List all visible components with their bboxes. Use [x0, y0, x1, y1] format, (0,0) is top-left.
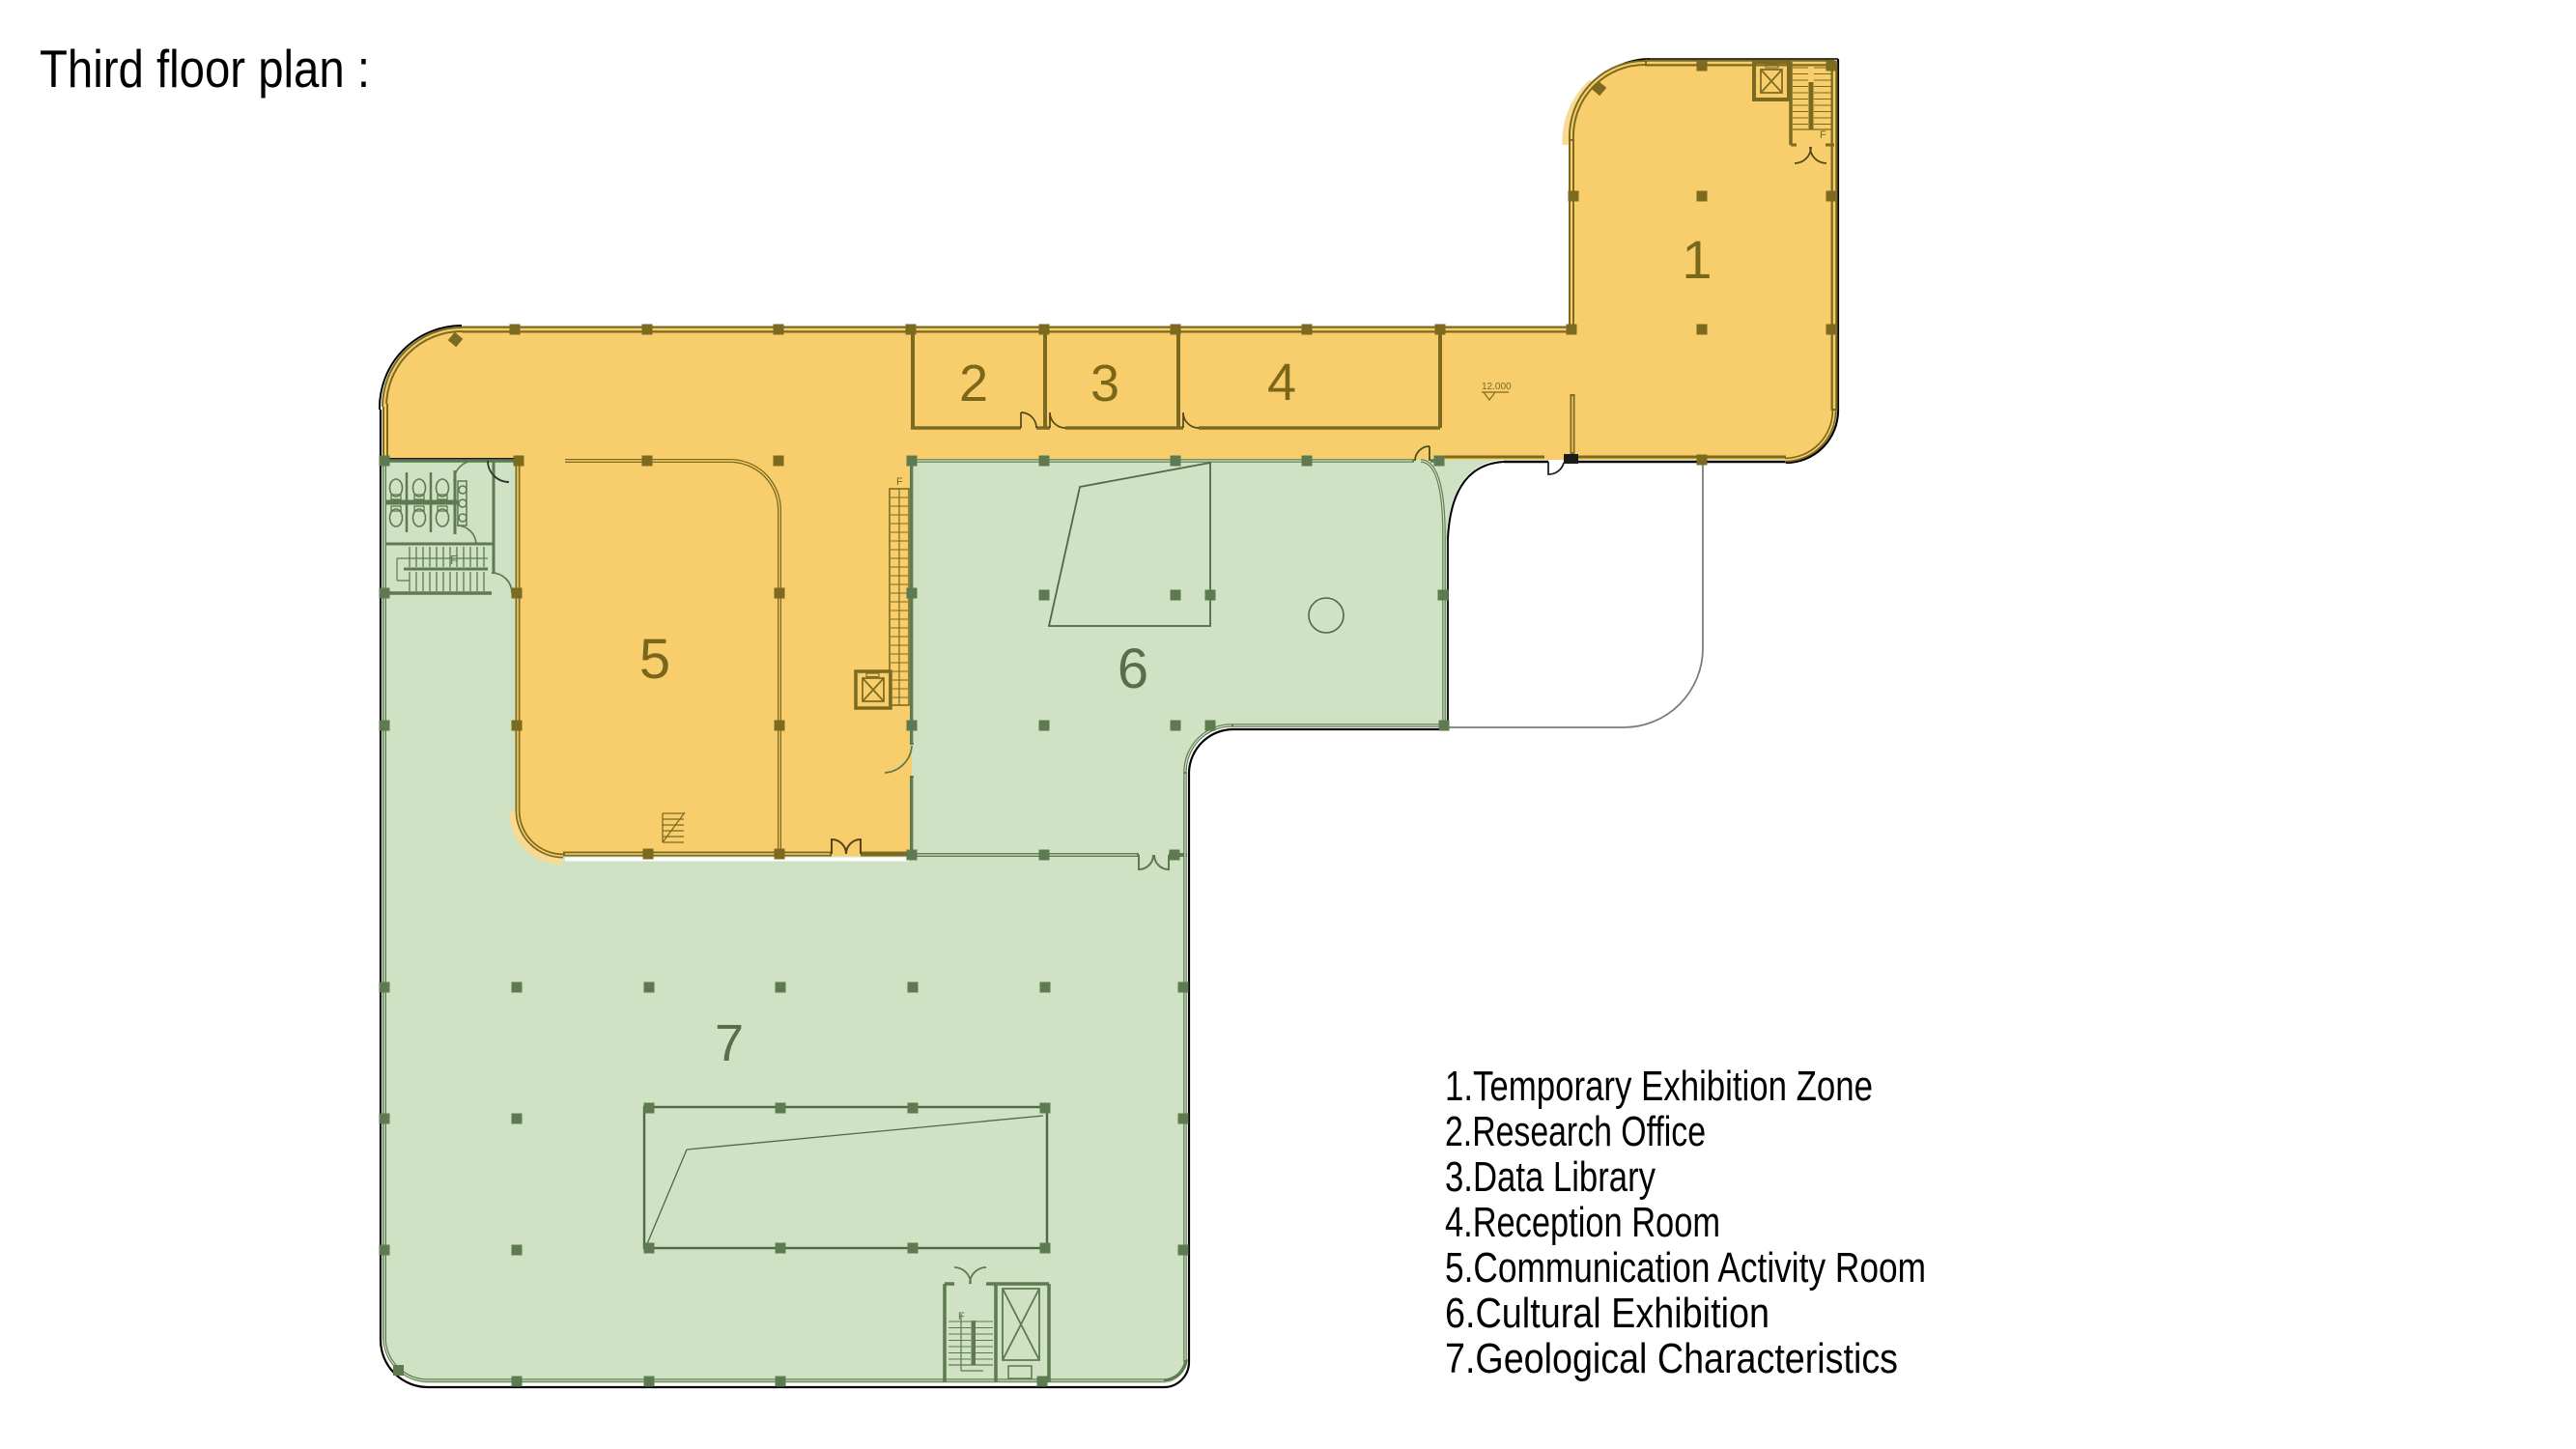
- svg-text:2: 2: [959, 355, 988, 412]
- svg-text:2.Research Office: 2.Research Office: [1445, 1108, 1706, 1155]
- svg-text:1: 1: [1682, 229, 1712, 290]
- svg-text:F: F: [896, 476, 903, 488]
- svg-text:3.Data Library: 3.Data Library: [1445, 1153, 1656, 1201]
- svg-text:7.Geological Characteristics: 7.Geological Characteristics: [1445, 1335, 1898, 1382]
- svg-text:4: 4: [1267, 354, 1296, 412]
- svg-text:F: F: [958, 1311, 965, 1322]
- svg-text:1.Temporary Exhibition Zone: 1.Temporary Exhibition Zone: [1445, 1063, 1873, 1110]
- svg-text:F: F: [1820, 129, 1826, 141]
- svg-text:5.Communication Activity Room: 5.Communication Activity Room: [1445, 1244, 1926, 1292]
- svg-text:6: 6: [1118, 638, 1148, 700]
- svg-text:12.000: 12.000: [1482, 382, 1512, 392]
- svg-text:Third floor plan :: Third floor plan :: [40, 39, 370, 99]
- svg-text:4.Reception Room: 4.Reception Room: [1445, 1199, 1720, 1246]
- svg-text:5: 5: [639, 628, 670, 691]
- svg-text:6.Cultural Exhibition: 6.Cultural Exhibition: [1445, 1290, 1769, 1337]
- svg-text:7: 7: [715, 1014, 744, 1072]
- svg-text:3: 3: [1090, 355, 1119, 412]
- svg-text:F: F: [450, 553, 458, 567]
